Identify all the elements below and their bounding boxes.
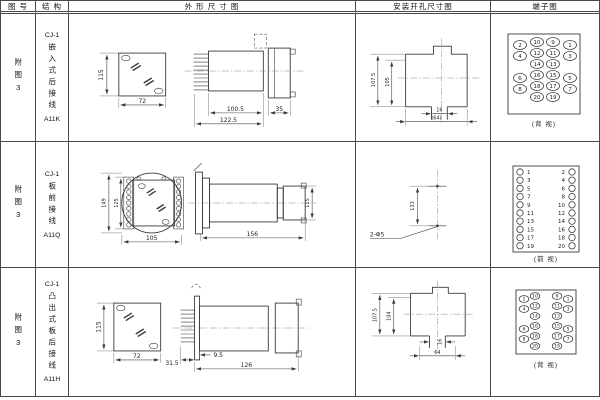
code-label: A11Q: [44, 232, 61, 239]
terminal-number: 11: [554, 304, 560, 310]
terminal-number: 19: [527, 243, 534, 249]
mount-hole: [436, 224, 439, 227]
terminal-14: [569, 218, 575, 224]
figure-number: 附图3: [14, 58, 22, 97]
hatch-mark: [144, 78, 154, 85]
terminal-number: 15: [550, 72, 557, 78]
outline-cell-a11k: 115 72 100.5 35 122.5: [69, 14, 356, 142]
figure-cell-a11k: 附图3: [1, 14, 36, 142]
code-label: A11H: [44, 376, 61, 383]
terminal-number: 17: [554, 334, 560, 340]
drawing-table: 图 号 结 构 外 形 尺 寸 图 安装开孔尺寸图 端子图 附图3 CJ-1 嵌…: [0, 0, 600, 397]
terminal-diagram-a11k: 2468101214161820911131517191357 (背 视): [491, 14, 599, 142]
side-view-flange: [268, 48, 290, 98]
terminal-number: 9: [527, 202, 531, 208]
terminal-number: 16: [558, 227, 565, 233]
dim-front-width: 105: [146, 234, 158, 241]
terminal-7: [517, 193, 523, 199]
terminal-17: [517, 234, 523, 240]
terminal-number: 10: [534, 39, 541, 45]
front-view-case: [114, 303, 161, 351]
hook-phantom: [192, 284, 201, 288]
terminal-number: 17: [550, 83, 557, 89]
figure-number: 附图3: [14, 313, 22, 352]
terminal-number: 1: [567, 297, 570, 303]
dim-flange-depth: 35: [275, 105, 283, 112]
terminal-cell-a11k: 2468101214161820911131517191357 (背 视): [491, 14, 599, 142]
structure-label: 板前接线: [48, 182, 56, 228]
terminal-diagram-a11q: 1357911131517192468101214161820 (前 视): [491, 142, 599, 268]
header-terminal: 端子图: [491, 1, 599, 14]
mounting-cell-a11q: 133 2-Φ5: [356, 142, 491, 268]
terminal-1: [517, 168, 523, 174]
hatch-mark: [147, 188, 156, 195]
terminal-number: 19: [550, 94, 557, 100]
header-structure: 结 构: [36, 1, 69, 14]
outline-drawing-a11k: 115 72 100.5 35 122.5: [69, 14, 355, 142]
dim-total-length: 126: [241, 362, 253, 369]
dim-front-height: 115: [98, 69, 105, 81]
terminal-number: 10: [558, 202, 565, 208]
structure-cell-a11h: CJ-1 凸出式板后接线 A11H: [36, 268, 69, 396]
latch-screw: [117, 305, 125, 311]
terminal-number: 7: [567, 337, 570, 343]
terminal-19: [517, 242, 523, 248]
mount-hole: [436, 184, 439, 187]
latch-screw: [150, 343, 158, 349]
outline-cell-a11q: 149 125 105 156 115: [69, 142, 356, 268]
terminal-number: 9: [556, 294, 559, 300]
structure-block: CJ-1 凸出式板后接线 A11H: [44, 281, 61, 384]
terminal-9: [517, 201, 523, 207]
structure-cell-a11k: CJ-1 嵌入式后接线 A11K: [36, 14, 69, 142]
terminal-number: 5: [527, 186, 531, 192]
terminal-number: 11: [527, 210, 534, 216]
terminal-number: 7: [527, 194, 531, 200]
dim-mount-inner-height: 105: [385, 77, 391, 86]
terminal-number: 19: [554, 344, 560, 350]
terminal-number: 3: [568, 53, 572, 59]
dim-body-length: 100.5: [227, 105, 244, 112]
page: 图 号 结 构 外 形 尺 寸 图 安装开孔尺寸图 端子图 附图3 CJ-1 嵌…: [0, 0, 600, 400]
header-outline: 外 形 尺 寸 图: [69, 1, 356, 14]
terminal-number: 2: [518, 42, 522, 48]
terminal-15: [517, 226, 523, 232]
terminal-grid: 2468101214161820911131517191357: [514, 37, 577, 101]
dim-front-height2: 125: [114, 198, 120, 207]
terminal-pins: [181, 310, 195, 342]
outline-cell-a11h: 115 72 31.5 9.5 126: [69, 268, 356, 396]
latch-screw: [162, 219, 169, 224]
front-view-case: [133, 180, 175, 226]
terminal-number: 6: [562, 186, 566, 192]
structure-block: CJ-1 板前接线 A11Q: [44, 171, 61, 239]
terminal-13: [517, 218, 523, 224]
figure-cell-a11h: 附图3: [1, 268, 36, 396]
terminal-12: [569, 209, 575, 215]
terminal-number: 15: [527, 227, 534, 233]
dim-cutout-width: 64: [434, 350, 440, 356]
view-caption: (背 视): [534, 360, 558, 369]
figure-cell-a11q: 附图3: [1, 142, 36, 268]
outline-drawing-a11q: 149 125 105 156 115: [69, 142, 355, 268]
header-figure: 图 号: [1, 1, 36, 14]
latch-screw: [122, 55, 130, 61]
terminal-4: [569, 177, 575, 183]
mounting-drawing-a11q: 133 2-Φ5: [356, 142, 490, 268]
dim-mount-inner-height: 104: [387, 311, 393, 320]
structure-label: 凸出式板后接线: [48, 292, 56, 373]
terminal-number: 8: [523, 337, 526, 343]
terminal-number: 20: [532, 344, 538, 350]
terminal-number: 18: [558, 235, 565, 241]
terminal-grid: 1357911131517192468101214161820: [517, 168, 575, 249]
terminal-strip-screws: [176, 178, 180, 226]
terminal-number: 18: [532, 334, 538, 340]
dim-hole-spacing: 133: [410, 201, 416, 210]
terminal-number: 15: [554, 324, 560, 330]
hatch-mark: [157, 204, 166, 211]
terminal-number: 4: [518, 53, 522, 59]
terminal-20: [569, 242, 575, 248]
view-caption: (背 视): [532, 119, 556, 128]
dim-mount-outer-height: 107.5: [372, 308, 378, 322]
header-mounting-label: 安装开孔尺寸图: [393, 1, 453, 12]
terminal-16: [569, 226, 575, 232]
terminal-number: 1: [527, 169, 531, 175]
terminal-18: [569, 234, 575, 240]
terminal-number: 10: [532, 294, 538, 300]
terminal-number: 20: [534, 94, 541, 100]
terminal-number: 16: [532, 324, 538, 330]
latch-screw: [138, 183, 145, 188]
terminal-number: 5: [567, 327, 570, 333]
terminal-number: 6: [518, 75, 522, 81]
terminal-cell-a11q: 1357911131517192468101214161820 (前 视): [491, 142, 599, 268]
header-structure-label: 结 构: [42, 1, 62, 12]
terminal-number: 11: [550, 50, 557, 56]
terminal-number: 9: [551, 39, 555, 45]
front-view-case: [119, 53, 166, 96]
hatch-mark: [136, 329, 146, 336]
dim-front-width: 72: [138, 97, 146, 104]
terminal-number: 17: [527, 235, 534, 241]
header-terminal-label: 端子图: [532, 1, 558, 12]
terminal-number: 3: [527, 178, 531, 184]
dim-panel-gap: 9.5: [213, 352, 223, 359]
mounting-cell-a11h: 107.5 104 16 64: [356, 268, 491, 396]
dim-side-height: 115: [305, 198, 311, 207]
dim-mount-outer-height: 107.5: [371, 72, 377, 86]
terminal-strip-left: [124, 177, 134, 229]
terminal-5: [517, 185, 523, 191]
terminal-number: 7: [568, 86, 572, 92]
terminal-grid: 2468101214161820911131517191357: [519, 293, 573, 350]
terminal-number: 4: [523, 307, 526, 313]
header-mounting: 安装开孔尺寸图: [356, 1, 491, 14]
dim-front-height: 115: [95, 321, 102, 333]
hatch-mark: [124, 313, 134, 320]
terminal-number: 14: [532, 314, 538, 320]
terminal-number: 2: [562, 169, 566, 175]
dim-front-height1: 149: [101, 198, 107, 207]
dim-notch-width: 16: [436, 107, 442, 113]
terminal-6: [569, 185, 575, 191]
header-outline-label: 外 形 尺 寸 图: [185, 1, 240, 12]
dim-cutout-width: (64): [431, 115, 441, 121]
terminal-8: [569, 193, 575, 199]
latch-screw: [155, 88, 163, 94]
terminal-number: 8: [562, 194, 566, 200]
hatch-mark: [194, 163, 202, 171]
terminal-number: 20: [558, 243, 565, 249]
terminal-10: [569, 201, 575, 207]
structure-label: 嵌入式后接线: [48, 43, 56, 112]
terminal-number: 13: [550, 61, 557, 67]
terminal-number: 18: [534, 83, 541, 89]
mounting-drawing-a11h: 107.5 104 16 64: [356, 268, 490, 396]
dim-notch-width: 16: [437, 339, 443, 345]
terminal-11: [517, 209, 523, 215]
terminal-number: 8: [518, 86, 522, 92]
terminal-number: 6: [523, 327, 526, 333]
terminal-number: 2: [523, 297, 526, 303]
terminal-3: [517, 177, 523, 183]
hatch-mark: [131, 63, 141, 70]
dim-stud-length: 31.5: [165, 360, 178, 367]
terminal-number: 12: [532, 304, 538, 310]
terminal-number: 13: [527, 219, 534, 225]
model-label: CJ-1: [45, 32, 59, 39]
hole-spec-label: 2-Φ5: [370, 231, 385, 238]
dim-front-width: 72: [133, 353, 141, 360]
top-connector-phantom: [254, 34, 266, 48]
structure-cell-a11q: CJ-1 板前接线 A11Q: [36, 142, 69, 268]
terminal-number: 3: [567, 307, 570, 313]
terminal-diagram-a11h: 2468101214161820911131517191357 (背 视): [491, 268, 599, 396]
mounting-drawing-a11k: 107.5 105 16 (64): [356, 14, 490, 142]
model-label: CJ-1: [45, 281, 59, 288]
header-figure-label: 图 号: [8, 1, 28, 12]
view-caption: (前 视): [534, 254, 558, 263]
terminal-pins: [194, 54, 209, 90]
terminal-number: 14: [534, 61, 541, 67]
dim-total-length: 122.5: [220, 116, 237, 123]
terminal-number: 5: [568, 75, 572, 81]
terminal-number: 13: [554, 314, 560, 320]
model-label: CJ-1: [45, 171, 59, 178]
dim-side-length: 156: [247, 230, 259, 237]
terminal-number: 14: [558, 219, 565, 225]
terminal-number: 1: [568, 42, 572, 48]
side-view-body: [200, 306, 269, 351]
terminal-number: 4: [562, 178, 566, 184]
structure-block: CJ-1 嵌入式后接线 A11K: [44, 32, 60, 123]
figure-number: 附图3: [14, 185, 22, 224]
code-label: A11K: [44, 116, 60, 123]
mounting-cell-a11k: 107.5 105 16 (64): [356, 14, 491, 142]
terminal-2: [569, 168, 575, 174]
terminal-cell-a11h: 2468101214161820911131517191357 (背 视): [491, 268, 599, 396]
terminal-number: 16: [534, 72, 541, 78]
terminal-number: 12: [534, 50, 541, 56]
terminal-number: 12: [558, 210, 565, 216]
outline-drawing-a11h: 115 72 31.5 9.5 126: [69, 268, 355, 396]
